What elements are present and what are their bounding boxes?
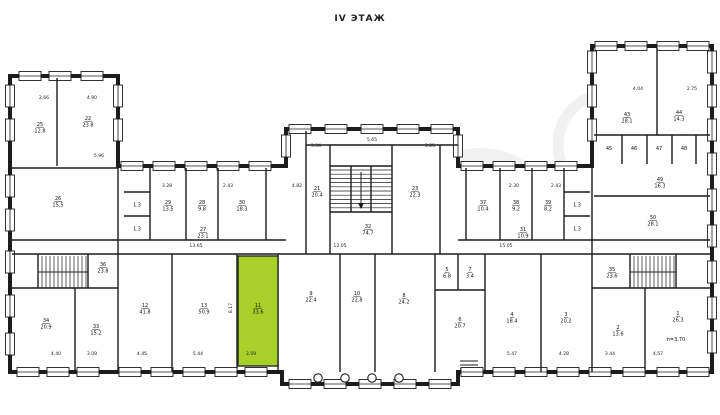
floor-title: IV ЭТАЖ	[0, 14, 720, 24]
svg-text:1.3: 1.3	[573, 203, 581, 209]
window-marker	[289, 125, 311, 134]
window-marker	[625, 42, 647, 51]
svg-text:10.9: 10.9	[517, 233, 528, 239]
svg-text:18.3: 18.3	[236, 206, 247, 212]
window-marker	[493, 368, 515, 377]
svg-text:46: 46	[631, 146, 637, 152]
svg-text:10.4: 10.4	[477, 206, 488, 212]
window-marker	[397, 125, 419, 134]
svg-text:48: 48	[681, 146, 687, 152]
svg-text:12.8: 12.8	[34, 128, 45, 134]
window-marker	[361, 125, 383, 134]
window-marker	[151, 368, 173, 377]
dimension-label: 2.30	[509, 183, 519, 189]
column-icon	[368, 374, 376, 382]
svg-text:28.1: 28.1	[647, 221, 658, 227]
dimension-label: 2.43	[551, 183, 561, 189]
svg-text:14.3: 14.3	[673, 116, 684, 122]
dimension-label: 2.75	[687, 86, 697, 92]
svg-text:20.9: 20.9	[40, 324, 51, 330]
dimension-label: 3.28	[162, 183, 172, 189]
window-marker	[557, 368, 579, 377]
svg-text:23.8: 23.8	[82, 122, 93, 128]
window-marker	[289, 380, 311, 389]
room-label-48: 48	[681, 146, 687, 152]
floor-plan-svg: 2512.82223.82615.52723.13274.73110.93623…	[0, 0, 720, 415]
window-marker	[77, 368, 99, 377]
dimension-label: 5.44	[193, 351, 203, 357]
window-marker	[325, 125, 347, 134]
svg-text:1.3: 1.3	[573, 227, 581, 233]
window-marker	[708, 85, 717, 107]
dimension-label: 5.47	[507, 351, 517, 357]
svg-text:50.9: 50.9	[198, 309, 209, 315]
dimension-label: 12.05	[333, 243, 346, 249]
window-marker	[525, 162, 547, 171]
svg-text:20.4: 20.4	[311, 192, 322, 198]
window-marker	[121, 162, 143, 171]
window-marker	[6, 175, 15, 197]
svg-text:22.4: 22.4	[305, 297, 316, 303]
window-marker	[708, 51, 717, 73]
dimension-label: 4.82	[292, 183, 302, 189]
dimension-label: 5.96	[94, 153, 104, 159]
window-marker	[623, 368, 645, 377]
window-marker	[217, 162, 239, 171]
svg-text:33.6: 33.6	[252, 309, 263, 315]
column-icon	[395, 374, 403, 382]
window-marker	[431, 125, 453, 134]
svg-text:8.2: 8.2	[544, 206, 552, 212]
dimension-label: 3.34	[311, 143, 321, 149]
window-marker	[708, 153, 717, 175]
dimension-label: 4.45	[137, 351, 147, 357]
svg-text:24.2: 24.2	[398, 299, 409, 305]
window-marker	[588, 51, 597, 73]
dimension-label: 13.65	[189, 243, 202, 249]
window-marker	[245, 368, 267, 377]
svg-text:28.1: 28.1	[621, 118, 632, 124]
room-label-47: 47	[656, 146, 662, 152]
svg-text:47: 47	[656, 146, 662, 152]
window-marker	[429, 380, 451, 389]
window-marker	[687, 42, 709, 51]
dimension-label: 4.90	[87, 95, 97, 101]
window-marker	[282, 135, 291, 157]
dimension-label: 3.44	[605, 351, 615, 357]
window-marker	[588, 119, 597, 141]
svg-text:22.8: 22.8	[351, 297, 362, 303]
svg-text:15.2: 15.2	[90, 330, 101, 336]
window-marker	[657, 42, 679, 51]
window-marker	[47, 368, 69, 377]
window-marker	[6, 85, 15, 107]
svg-text:3.4: 3.4	[466, 273, 474, 279]
dimension-label: 15.05	[499, 243, 512, 249]
dimension-label: 4.04	[633, 86, 643, 92]
window-marker	[6, 119, 15, 141]
svg-text:9.2: 9.2	[512, 206, 520, 212]
dimension-label: 4.28	[559, 351, 569, 357]
floor-plan-canvas: 2512.82223.82615.52723.13274.73110.93623…	[0, 0, 720, 415]
room-label: 1.3	[133, 227, 141, 233]
room-label: 1.3	[573, 227, 581, 233]
svg-text:1.3: 1.3	[133, 203, 141, 209]
window-marker	[493, 162, 515, 171]
dimension-label: 4.40	[51, 351, 61, 357]
window-marker	[114, 119, 123, 141]
window-marker	[555, 162, 577, 171]
svg-text:1.3: 1.3	[133, 227, 141, 233]
window-marker	[81, 72, 103, 81]
dimension-label: 3.59	[246, 351, 256, 357]
window-marker	[153, 162, 175, 171]
window-marker	[461, 162, 483, 171]
column-icon	[341, 374, 349, 382]
room-label: 1.3	[573, 203, 581, 209]
dimension-label: 5.65	[367, 137, 377, 143]
window-marker	[708, 189, 717, 211]
window-marker	[588, 85, 597, 107]
window-marker	[454, 135, 463, 157]
dimension-label: 3.25	[425, 143, 435, 149]
window-marker	[687, 368, 709, 377]
room-label: 1.3	[133, 203, 141, 209]
window-marker	[114, 85, 123, 107]
window-marker	[183, 368, 205, 377]
window-marker	[6, 333, 15, 355]
window-marker	[657, 368, 679, 377]
svg-text:23.1: 23.1	[197, 233, 208, 239]
dimension-label: 4.57	[653, 351, 663, 357]
window-marker	[249, 162, 271, 171]
svg-text:13.6: 13.6	[612, 331, 623, 337]
window-marker	[185, 162, 207, 171]
svg-text:20.7: 20.7	[454, 323, 465, 329]
dimension-label: 8.17	[228, 303, 234, 313]
window-marker	[708, 331, 717, 353]
dimension-label: 3.09	[87, 351, 97, 357]
svg-text:23.6: 23.6	[606, 273, 617, 279]
window-marker	[461, 368, 483, 377]
dimension-label: 2.43	[223, 183, 233, 189]
svg-text:23.8: 23.8	[97, 268, 108, 274]
svg-text:13.5: 13.5	[162, 206, 173, 212]
window-marker	[525, 368, 547, 377]
room-label-39: 398.2	[544, 200, 552, 212]
svg-text:41.8: 41.8	[139, 309, 150, 315]
ceiling-height-note: h=3.70	[667, 337, 686, 343]
svg-text:9.8: 9.8	[198, 206, 206, 212]
svg-text:26.3: 26.3	[672, 317, 683, 323]
svg-text:45: 45	[606, 146, 612, 152]
room-label-28: 289.8	[198, 200, 206, 212]
window-marker	[215, 368, 237, 377]
room-label-45: 45	[606, 146, 612, 152]
svg-text:16.3: 16.3	[654, 183, 665, 189]
svg-text:6.8: 6.8	[443, 273, 451, 279]
svg-text:18.4: 18.4	[506, 318, 517, 324]
window-marker	[17, 368, 39, 377]
dimension-label: 2.66	[39, 95, 49, 101]
window-marker	[708, 225, 717, 247]
window-marker	[708, 261, 717, 283]
window-marker	[49, 72, 71, 81]
floor-plan-page: IV ЭТАЖ 2512.82223.82615.52723.13274.731…	[0, 0, 720, 415]
window-marker	[19, 72, 41, 81]
room-label-46: 46	[631, 146, 637, 152]
column-icon	[314, 374, 322, 382]
window-marker	[595, 42, 617, 51]
window-marker	[708, 119, 717, 141]
svg-text:74.7: 74.7	[362, 230, 373, 236]
room-label-38: 389.2	[512, 200, 520, 212]
svg-text:22.3: 22.3	[409, 192, 420, 198]
window-marker	[708, 297, 717, 319]
svg-text:15.5: 15.5	[52, 202, 63, 208]
window-marker	[6, 209, 15, 231]
window-marker	[119, 368, 141, 377]
svg-text:20.2: 20.2	[560, 318, 571, 324]
window-marker	[6, 295, 15, 317]
